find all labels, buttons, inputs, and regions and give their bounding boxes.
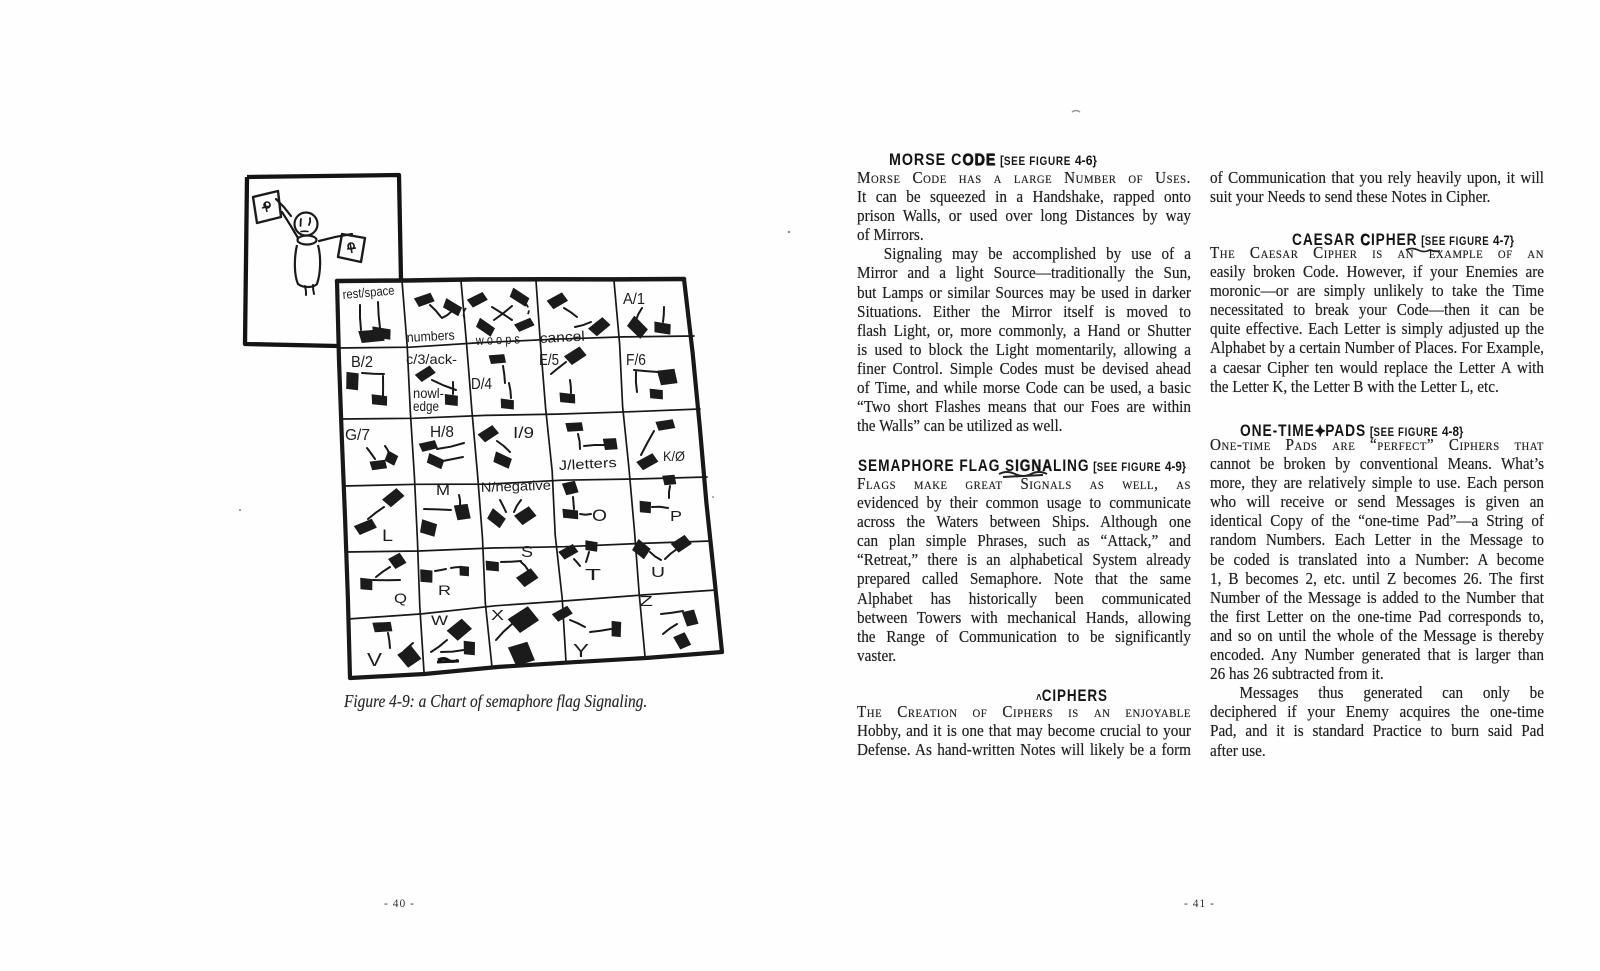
- svg-text:numbers: numbers: [406, 327, 455, 345]
- svg-text:Q: Q: [394, 590, 407, 606]
- svg-text:O: O: [592, 506, 607, 525]
- svg-text:K/Ø: K/Ø: [663, 449, 685, 464]
- svg-text:V: V: [367, 650, 382, 670]
- svg-text:E/5: E/5: [539, 352, 559, 369]
- svg-text:J/letters: J/letters: [558, 455, 617, 473]
- svg-text:edge: edge: [413, 399, 439, 414]
- svg-text:cancel: cancel: [539, 328, 585, 346]
- svg-text:w o o p s: w o o p s: [475, 331, 521, 348]
- svg-text:Y: Y: [573, 641, 589, 661]
- svg-text:B/2: B/2: [351, 354, 373, 371]
- svg-text:F/6: F/6: [626, 352, 646, 369]
- svg-text:D/4: D/4: [471, 376, 492, 393]
- svg-text:U: U: [651, 564, 665, 581]
- svg-text:Z: Z: [639, 593, 653, 610]
- svg-text:A/1: A/1: [623, 291, 645, 308]
- svg-text:c/3/ack-: c/3/ack-: [406, 352, 457, 367]
- svg-text:R: R: [438, 582, 451, 598]
- svg-text:I/9: I/9: [513, 425, 534, 442]
- svg-text:W: W: [431, 612, 449, 628]
- svg-text:T: T: [585, 567, 601, 584]
- svg-text:L: L: [382, 526, 393, 545]
- svg-text:N/negative: N/negative: [481, 478, 551, 495]
- svg-text:rest/space: rest/space: [342, 283, 395, 302]
- svg-text:S: S: [521, 544, 533, 561]
- svg-text:P: P: [670, 508, 682, 525]
- svg-text:G/7: G/7: [345, 427, 370, 444]
- svg-text:X: X: [491, 607, 504, 624]
- svg-text:M: M: [436, 482, 450, 499]
- svg-text:H/8: H/8: [430, 424, 454, 441]
